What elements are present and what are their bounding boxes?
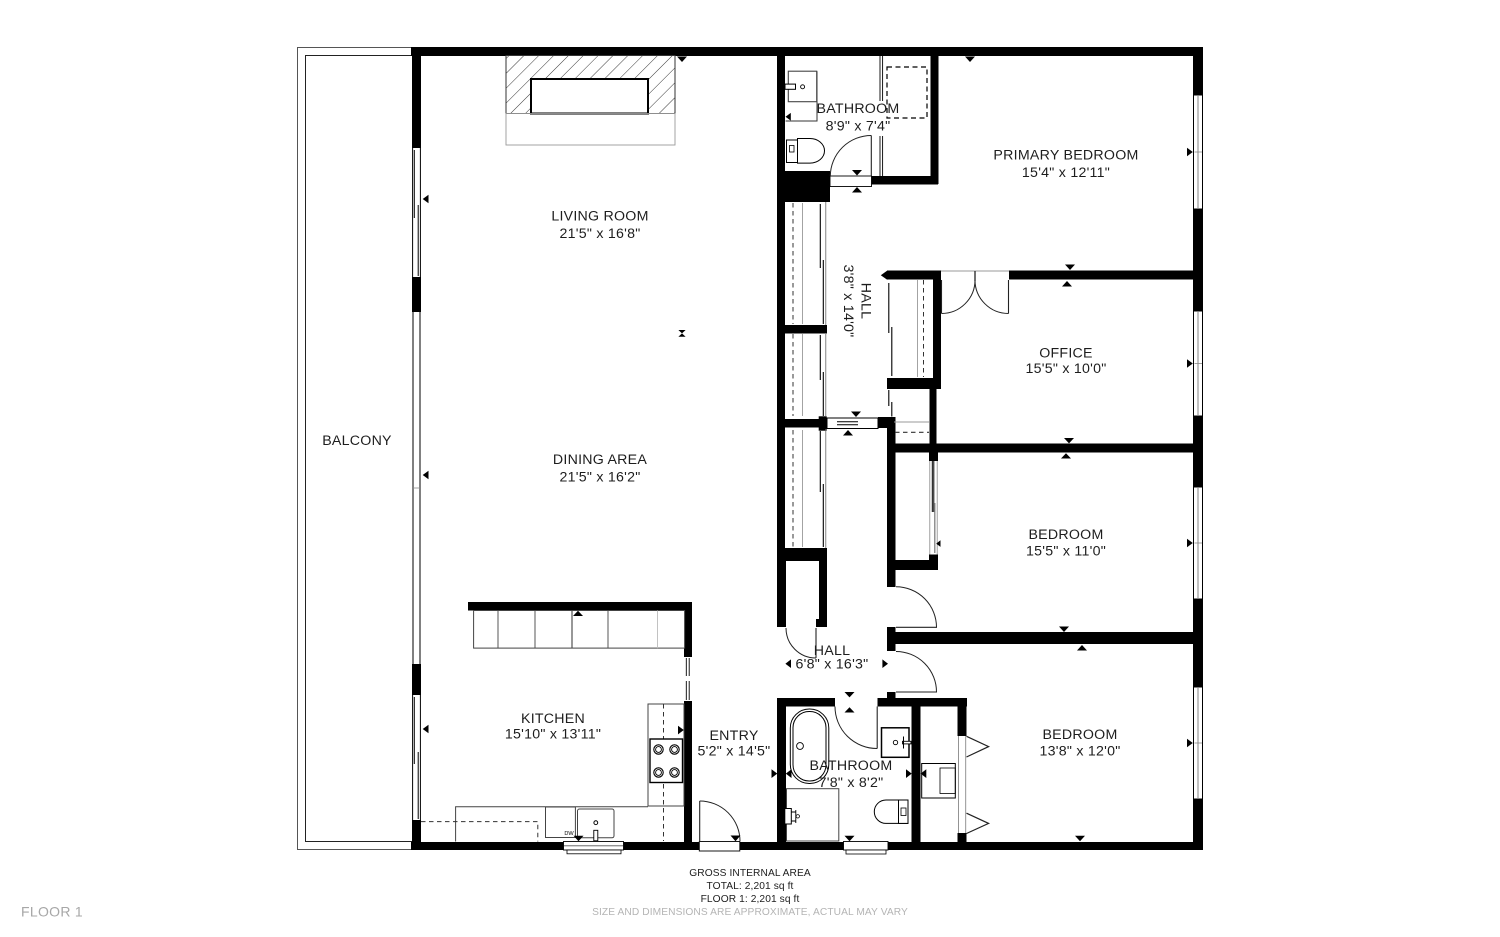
svg-text:TOTAL: 2,201 sq ft: TOTAL: 2,201 sq ft xyxy=(707,881,794,892)
svg-text:GROSS INTERNAL AREA: GROSS INTERNAL AREA xyxy=(689,868,811,879)
svg-text:BATHROOM: BATHROOM xyxy=(817,101,900,117)
svg-text:21'5" x 16'2": 21'5" x 16'2" xyxy=(559,470,640,486)
svg-text:HALL: HALL xyxy=(858,283,874,320)
svg-text:BEDROOM: BEDROOM xyxy=(1028,527,1103,543)
svg-text:15'5" x 11'0": 15'5" x 11'0" xyxy=(1026,544,1106,560)
svg-text:FLOOR 1: FLOOR 1 xyxy=(21,904,83,920)
svg-text:13'8" x 12'0": 13'8" x 12'0" xyxy=(1039,744,1120,760)
svg-text:8'9" x 7'4": 8'9" x 7'4" xyxy=(826,119,891,135)
svg-text:15'5" x 10'0": 15'5" x 10'0" xyxy=(1025,361,1106,377)
svg-text:DW: DW xyxy=(564,831,574,837)
svg-text:3'8" x 14'0": 3'8" x 14'0" xyxy=(840,265,856,338)
svg-text:LIVING ROOM: LIVING ROOM xyxy=(551,209,648,225)
svg-text:6'8" x 16'3": 6'8" x 16'3" xyxy=(796,657,869,673)
svg-text:DINING AREA: DINING AREA xyxy=(553,452,647,468)
svg-text:BEDROOM: BEDROOM xyxy=(1042,727,1117,743)
svg-text:PRIMARY BEDROOM: PRIMARY BEDROOM xyxy=(993,148,1138,164)
svg-text:ENTRY: ENTRY xyxy=(709,728,758,744)
svg-text:OFFICE: OFFICE xyxy=(1039,346,1093,362)
svg-text:SIZE AND DIMENSIONS ARE APPROX: SIZE AND DIMENSIONS ARE APPROXIMATE, ACT… xyxy=(592,907,908,918)
svg-text:BATHROOM: BATHROOM xyxy=(810,758,893,774)
svg-text:15'4" x 12'11": 15'4" x 12'11" xyxy=(1022,165,1110,181)
svg-text:15'10" x 13'11": 15'10" x 13'11" xyxy=(505,727,601,743)
svg-text:5'2" x 14'5": 5'2" x 14'5" xyxy=(698,744,771,760)
svg-text:21'5" x 16'8": 21'5" x 16'8" xyxy=(559,226,640,242)
svg-text:7'8" x 8'2": 7'8" x 8'2" xyxy=(819,775,884,791)
svg-text:FLOOR 1: 2,201 sq ft: FLOOR 1: 2,201 sq ft xyxy=(701,894,800,905)
svg-text:KITCHEN: KITCHEN xyxy=(521,711,585,727)
svg-text:BALCONY: BALCONY xyxy=(322,433,392,449)
